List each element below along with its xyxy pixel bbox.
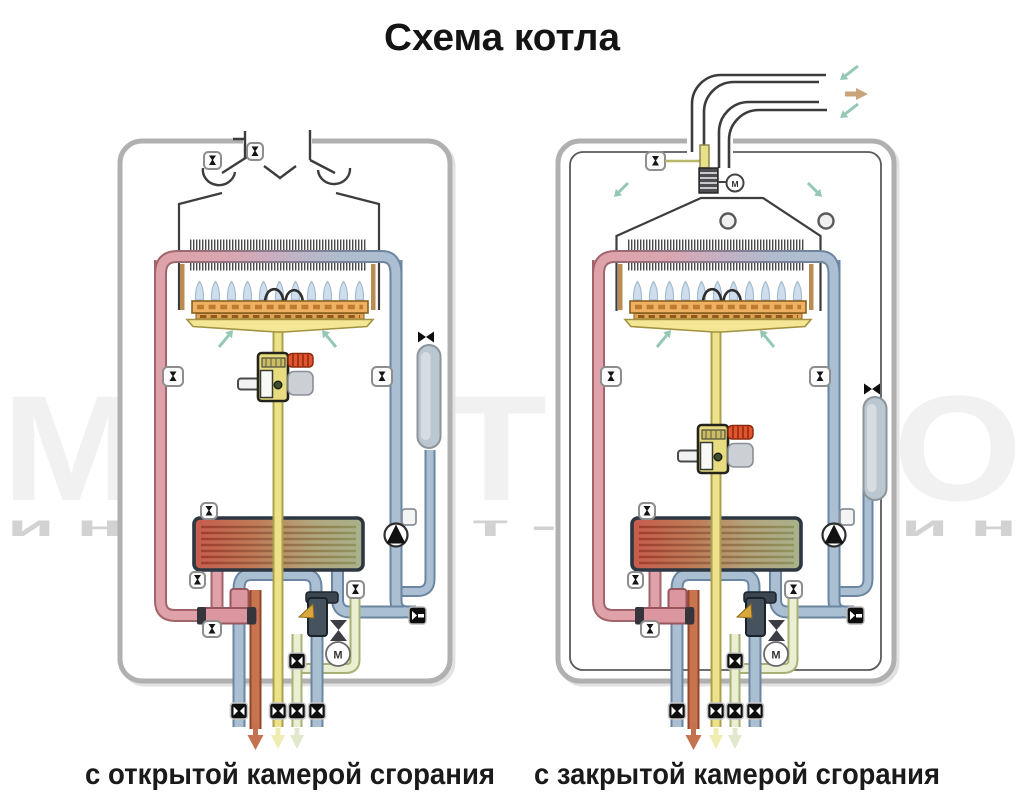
svg-text:M: M bbox=[333, 650, 342, 662]
svg-text:с закрытой камерой сгорания: с закрытой камерой сгорания bbox=[534, 758, 940, 791]
svg-text:Схема котла: Схема котла bbox=[384, 17, 621, 59]
svg-text:M: M bbox=[731, 179, 738, 189]
svg-text:с открытой камерой сгорания: с открытой камерой сгорания bbox=[85, 758, 495, 791]
svg-text:M: M bbox=[771, 650, 780, 662]
